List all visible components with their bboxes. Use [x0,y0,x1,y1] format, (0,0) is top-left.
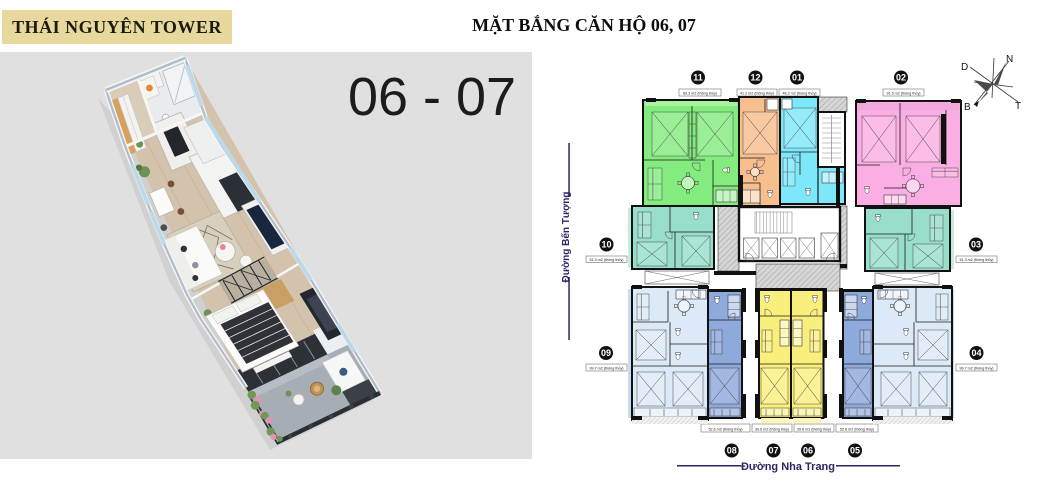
svg-text:39.6 m2 (thông thủy): 39.6 m2 (thông thủy) [755,427,789,431]
svg-text:11: 11 [693,73,703,83]
svg-text:06 - 07: 06 - 07 [348,67,516,127]
svg-text:52.6 m2 (thông thủy): 52.6 m2 (thông thủy) [840,427,874,431]
svg-text:Đường Nha Trang: Đường Nha Trang [741,461,835,473]
svg-text:10: 10 [601,240,611,250]
svg-text:N: N [1006,54,1013,65]
svg-text:T: T [1015,101,1021,112]
svg-text:05: 05 [850,446,860,456]
svg-text:51.3 m2 (thông thủy): 51.3 m2 (thông thủy) [959,258,993,262]
svg-text:99.7 m2 (thông thủy): 99.7 m2 (thông thủy) [959,366,993,370]
svg-text:51.3 m2 (thông thủy): 51.3 m2 (thông thủy) [589,258,623,262]
svg-text:01: 01 [792,73,802,83]
svg-text:D: D [961,62,968,73]
svg-text:07: 07 [768,446,778,456]
svg-text:09: 09 [601,348,611,358]
svg-text:MẶT BẮNG CĂN HỘ 06, 07: MẶT BẮNG CĂN HỘ 06, 07 [472,14,696,35]
svg-text:02: 02 [896,73,906,83]
svg-text:48.2 m2 (thông thủy): 48.2 m2 (thông thủy) [782,91,816,95]
svg-text:12: 12 [750,73,760,83]
svg-text:B: B [964,102,971,113]
svg-text:06: 06 [803,446,813,456]
svg-text:91.5 m2 (thông thủy): 91.5 m2 (thông thủy) [886,91,920,95]
svg-text:89.3 m2 (thông thủy): 89.3 m2 (thông thủy) [683,91,717,95]
svg-text:41.2 m2 (thông thủy): 41.2 m2 (thông thủy) [740,91,774,95]
svg-text:99.7 m2 (thông thủy): 99.7 m2 (thông thủy) [589,366,623,370]
svg-text:03: 03 [971,240,981,250]
svg-text:08: 08 [727,446,737,456]
svg-text:Đường Bến Tượng: Đường Bến Tượng [560,192,572,283]
svg-text:THÁI NGUYÊN TOWER: THÁI NGUYÊN TOWER [12,16,222,37]
svg-text:52.6 m2 (thông thủy): 52.6 m2 (thông thủy) [708,427,742,431]
svg-text:04: 04 [971,348,981,358]
svg-text:39.6 m2 (thông thủy): 39.6 m2 (thông thủy) [797,427,831,431]
